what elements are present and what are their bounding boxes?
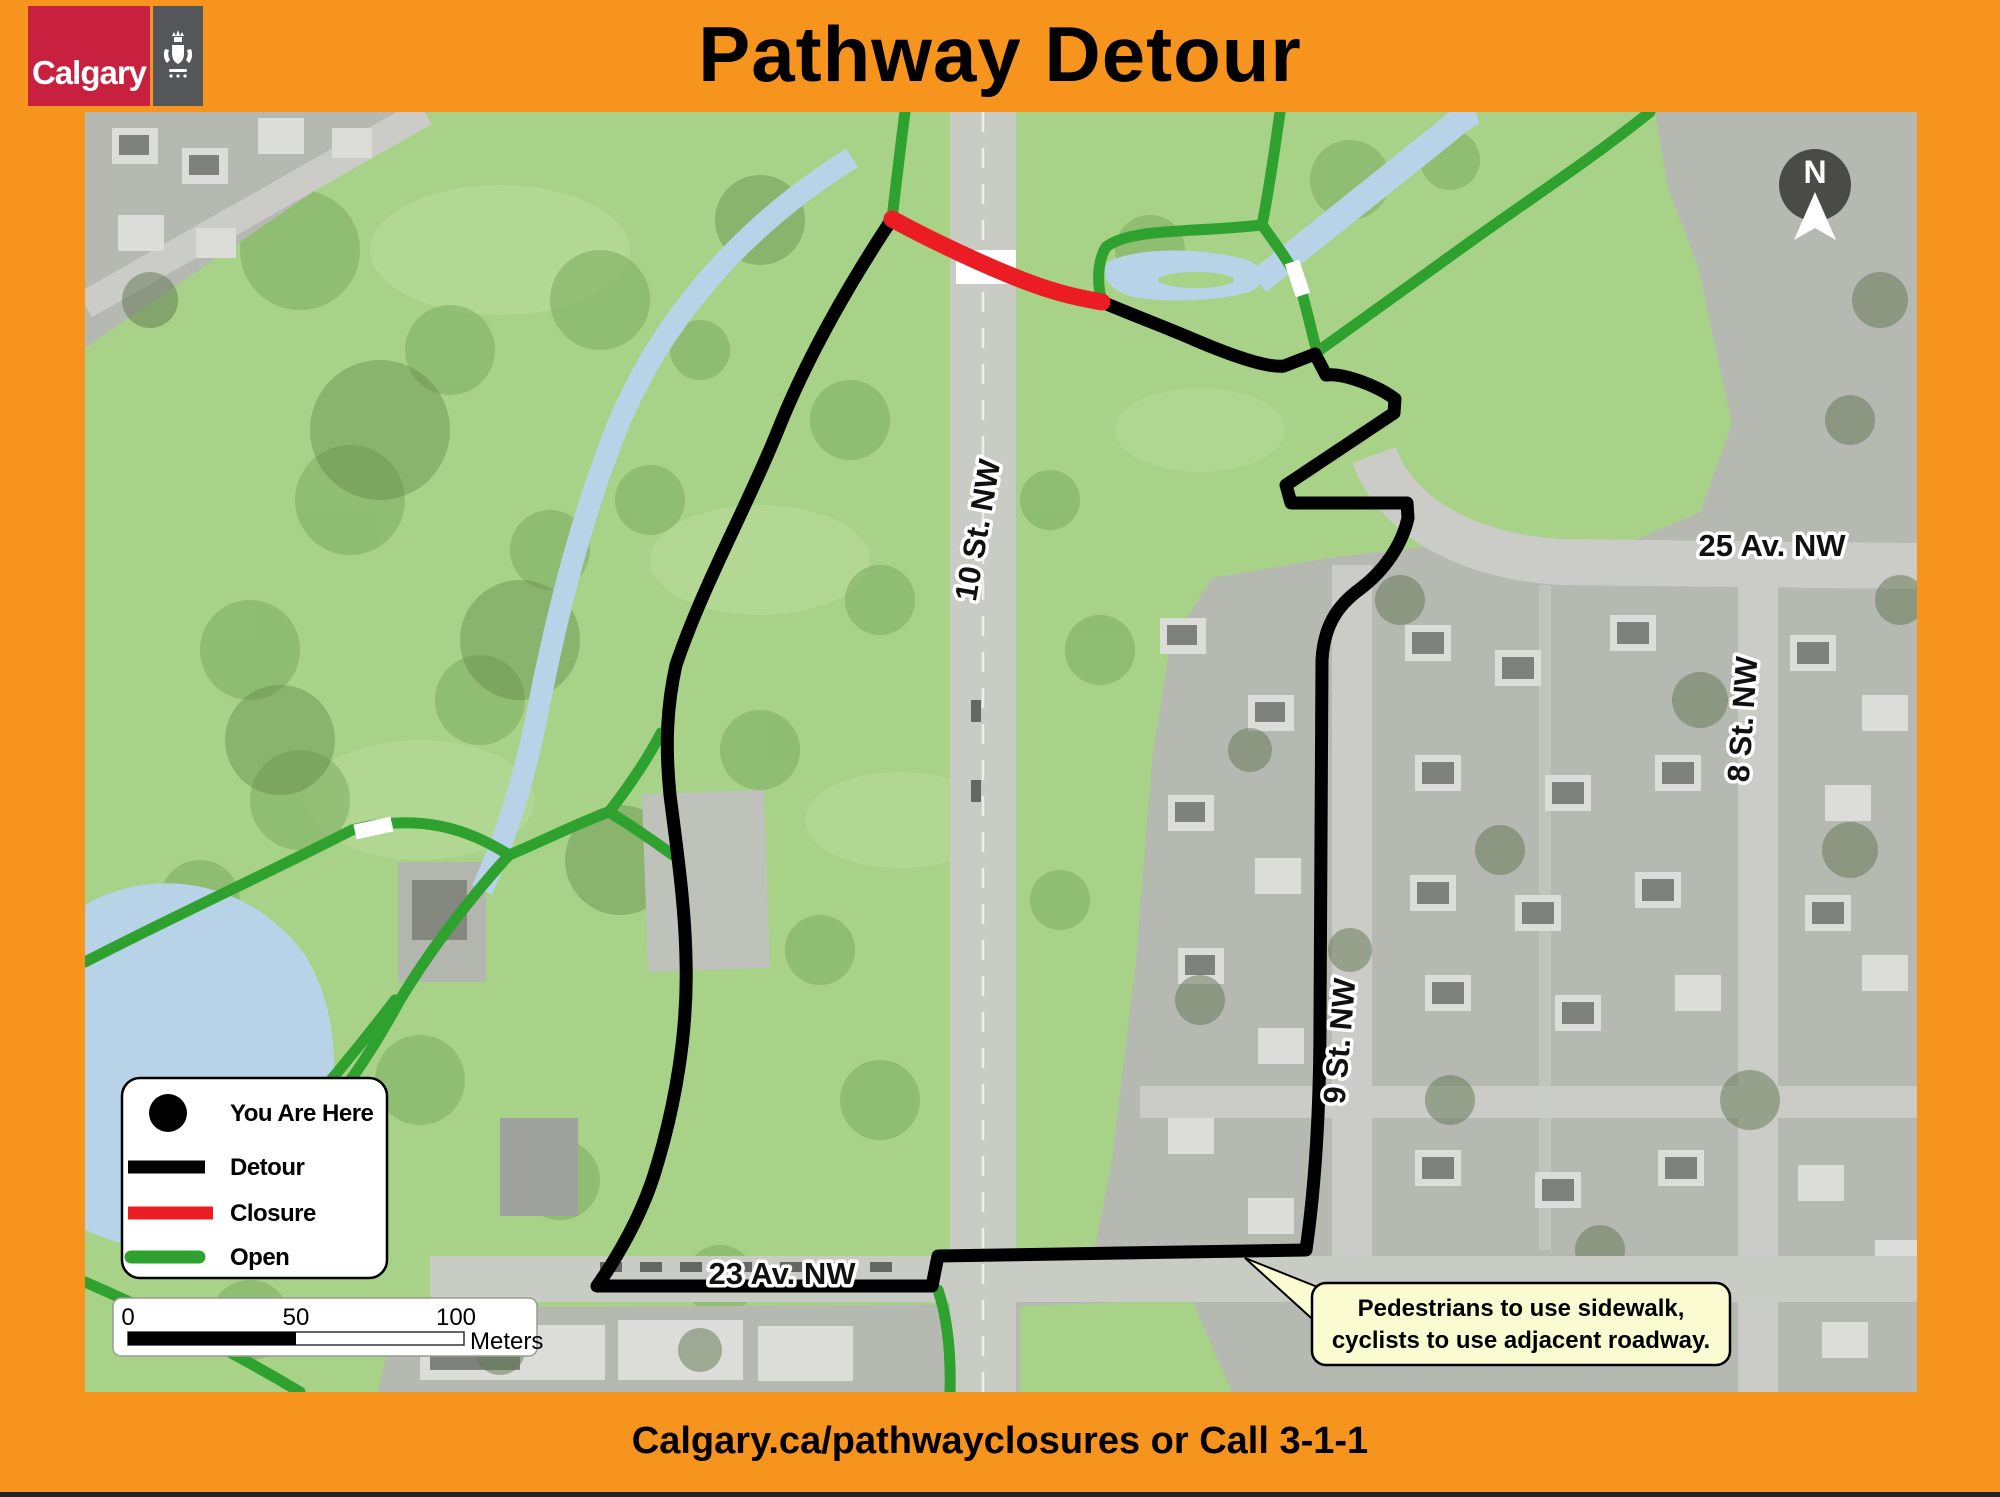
label-23av: 23 Av. NW: [709, 1256, 857, 1291]
scale-tick-100: 100: [436, 1304, 476, 1331]
legend-detour-label: Detour: [230, 1154, 304, 1181]
callout-line1: Pedestrians to use sidewalk,: [1358, 1295, 1685, 1322]
legend-closure-label: Closure: [230, 1200, 316, 1227]
calgary-crest-box: [153, 6, 203, 106]
label-25av: 25 Av. NW: [1699, 528, 1847, 563]
calgary-wordmark: Calgary: [28, 54, 150, 92]
map-canvas: 10 St. NW 9 St. NW 8 St. NW 25 Av. NW 23…: [85, 112, 1917, 1392]
detour-map: 10 St. NW 9 St. NW 8 St. NW 25 Av. NW 23…: [85, 112, 1917, 1392]
footer-band: Calgary.ca/pathwayclosures or Call 3-1-1: [0, 1392, 2000, 1493]
legend: You Are Here Detour Closure Open: [122, 1078, 387, 1278]
north-letter: N: [1803, 154, 1826, 190]
calgary-logo: Calgary: [28, 6, 150, 106]
header-band: Pathway Detour Calgary: [0, 0, 2000, 112]
scale-tick-0: 0: [121, 1304, 134, 1331]
detour-connector-path: [1102, 302, 1315, 366]
bottom-edge: [0, 1492, 2000, 1497]
legend-you-are-here-label: You Are Here: [230, 1100, 374, 1127]
legend-you-are-here-marker: [149, 1094, 187, 1132]
legend-open-label: Open: [230, 1244, 289, 1271]
footer-contact-text: Calgary.ca/pathwayclosures or Call 3-1-1: [0, 1392, 2000, 1493]
callout-line2: cyclists to use adjacent roadway.: [1332, 1327, 1710, 1354]
page-title: Pathway Detour: [0, 0, 2000, 112]
scale-unit: Meters: [470, 1328, 543, 1355]
pond-inlet: [1158, 272, 1234, 288]
calgary-crest-icon: [161, 23, 195, 89]
scale-bar: 0 50 100 Meters: [113, 1298, 543, 1356]
scale-tick-50: 50: [283, 1304, 310, 1331]
